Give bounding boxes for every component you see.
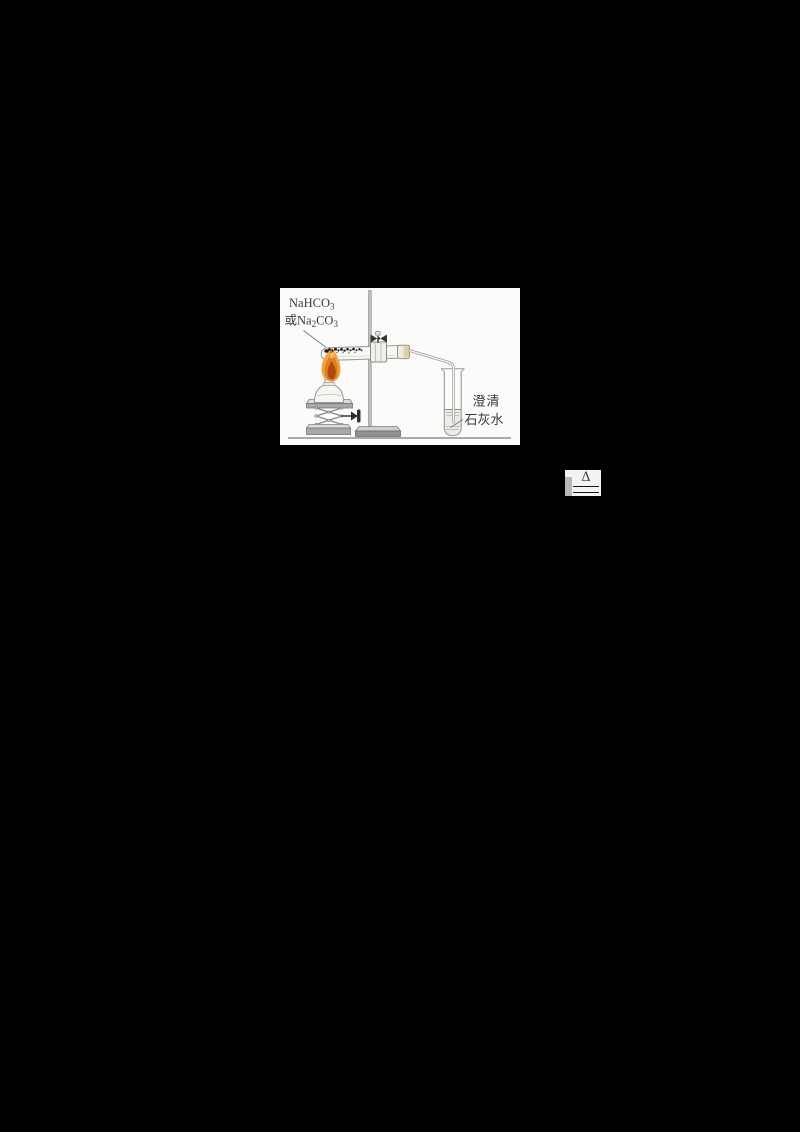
clamp-wingnut-left: [371, 335, 378, 343]
apparatus-figure: NaHCO3 或Na2CO3 澄清 石灰水: [280, 288, 520, 445]
lab-jack: [307, 400, 361, 435]
document-page: NaHCO3 或Na2CO3 澄清 石灰水 Δ: [0, 0, 800, 1132]
equation-grey-strip: [565, 477, 572, 496]
clamp-wingnut-right: [380, 335, 387, 343]
jack-scissors: [316, 408, 342, 425]
jack-knob-handle: [357, 410, 361, 423]
jack-bottom-plate: [307, 425, 351, 429]
iron-stand: [356, 291, 401, 437]
jack-top-plate-edge: [307, 404, 353, 409]
limewater-label-line2: 石灰水: [465, 412, 504, 427]
clamp-wingnut-hub: [378, 337, 380, 339]
stand-base-front: [356, 431, 401, 437]
heat-delta-symbol: Δ: [572, 470, 600, 485]
reagent-leader-line: [304, 331, 326, 348]
reagent-label: NaHCO3: [289, 296, 335, 312]
limewater-label-line1: 澄清: [473, 394, 501, 409]
stopper-tint: [404, 346, 409, 357]
apparatus-diagram: NaHCO3 或Na2CO3 澄清 石灰水: [280, 288, 520, 445]
clamp: [371, 332, 388, 363]
stand-base-top: [356, 427, 401, 432]
reagent-label-line2: 或Na2CO3: [285, 314, 339, 330]
equation-fragment: Δ: [565, 470, 601, 496]
clamp-screw-head: [376, 332, 381, 336]
lamp-collar: [324, 383, 335, 386]
clamp-collar: [371, 342, 387, 362]
jack-knob-cone: [351, 412, 358, 421]
jack-bottom-plate-edge: [307, 428, 351, 435]
equation-equals-lines: [573, 486, 599, 493]
lamp-body: [314, 378, 343, 403]
rubber-stopper: [398, 345, 410, 358]
